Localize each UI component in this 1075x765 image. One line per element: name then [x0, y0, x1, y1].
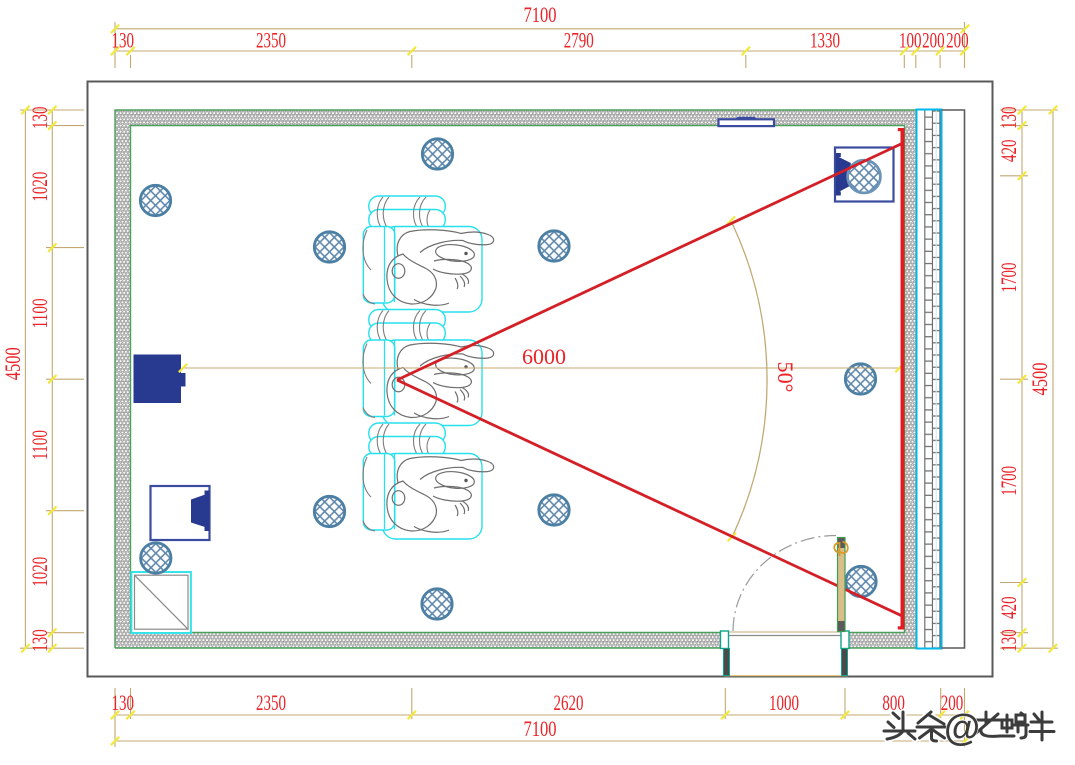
svg-text:1000: 1000	[769, 690, 799, 715]
svg-text:7100: 7100	[524, 716, 557, 741]
svg-text:1100: 1100	[27, 298, 52, 328]
svg-text:420: 420	[996, 596, 1021, 619]
svg-text:1020: 1020	[27, 172, 52, 202]
svg-text:1020: 1020	[27, 557, 52, 587]
svg-text:200: 200	[922, 28, 945, 53]
svg-text:130: 130	[112, 690, 135, 715]
svg-text:1700: 1700	[996, 466, 1021, 496]
svg-text:1330: 1330	[810, 28, 840, 53]
svg-text:2350: 2350	[256, 28, 286, 53]
svg-text:130: 130	[27, 107, 52, 130]
svg-text:@: @	[944, 707, 980, 748]
svg-text:200: 200	[946, 28, 969, 53]
svg-text:130: 130	[112, 28, 135, 53]
svg-text:50°: 50°	[773, 362, 798, 393]
svg-text:130: 130	[996, 629, 1021, 652]
svg-text:7100: 7100	[524, 2, 557, 27]
svg-text:2350: 2350	[256, 690, 286, 715]
svg-text:100: 100	[899, 28, 922, 53]
svg-text:4500: 4500	[0, 347, 25, 380]
svg-text:130: 130	[27, 629, 52, 652]
svg-text:1100: 1100	[27, 430, 52, 460]
svg-text:2790: 2790	[564, 28, 594, 53]
svg-text:1700: 1700	[996, 263, 1021, 293]
svg-text:130: 130	[996, 107, 1021, 130]
svg-text:2620: 2620	[554, 690, 584, 715]
svg-text:4500: 4500	[1027, 363, 1052, 396]
svg-text:6000: 6000	[522, 344, 566, 369]
svg-text:420: 420	[996, 139, 1021, 162]
